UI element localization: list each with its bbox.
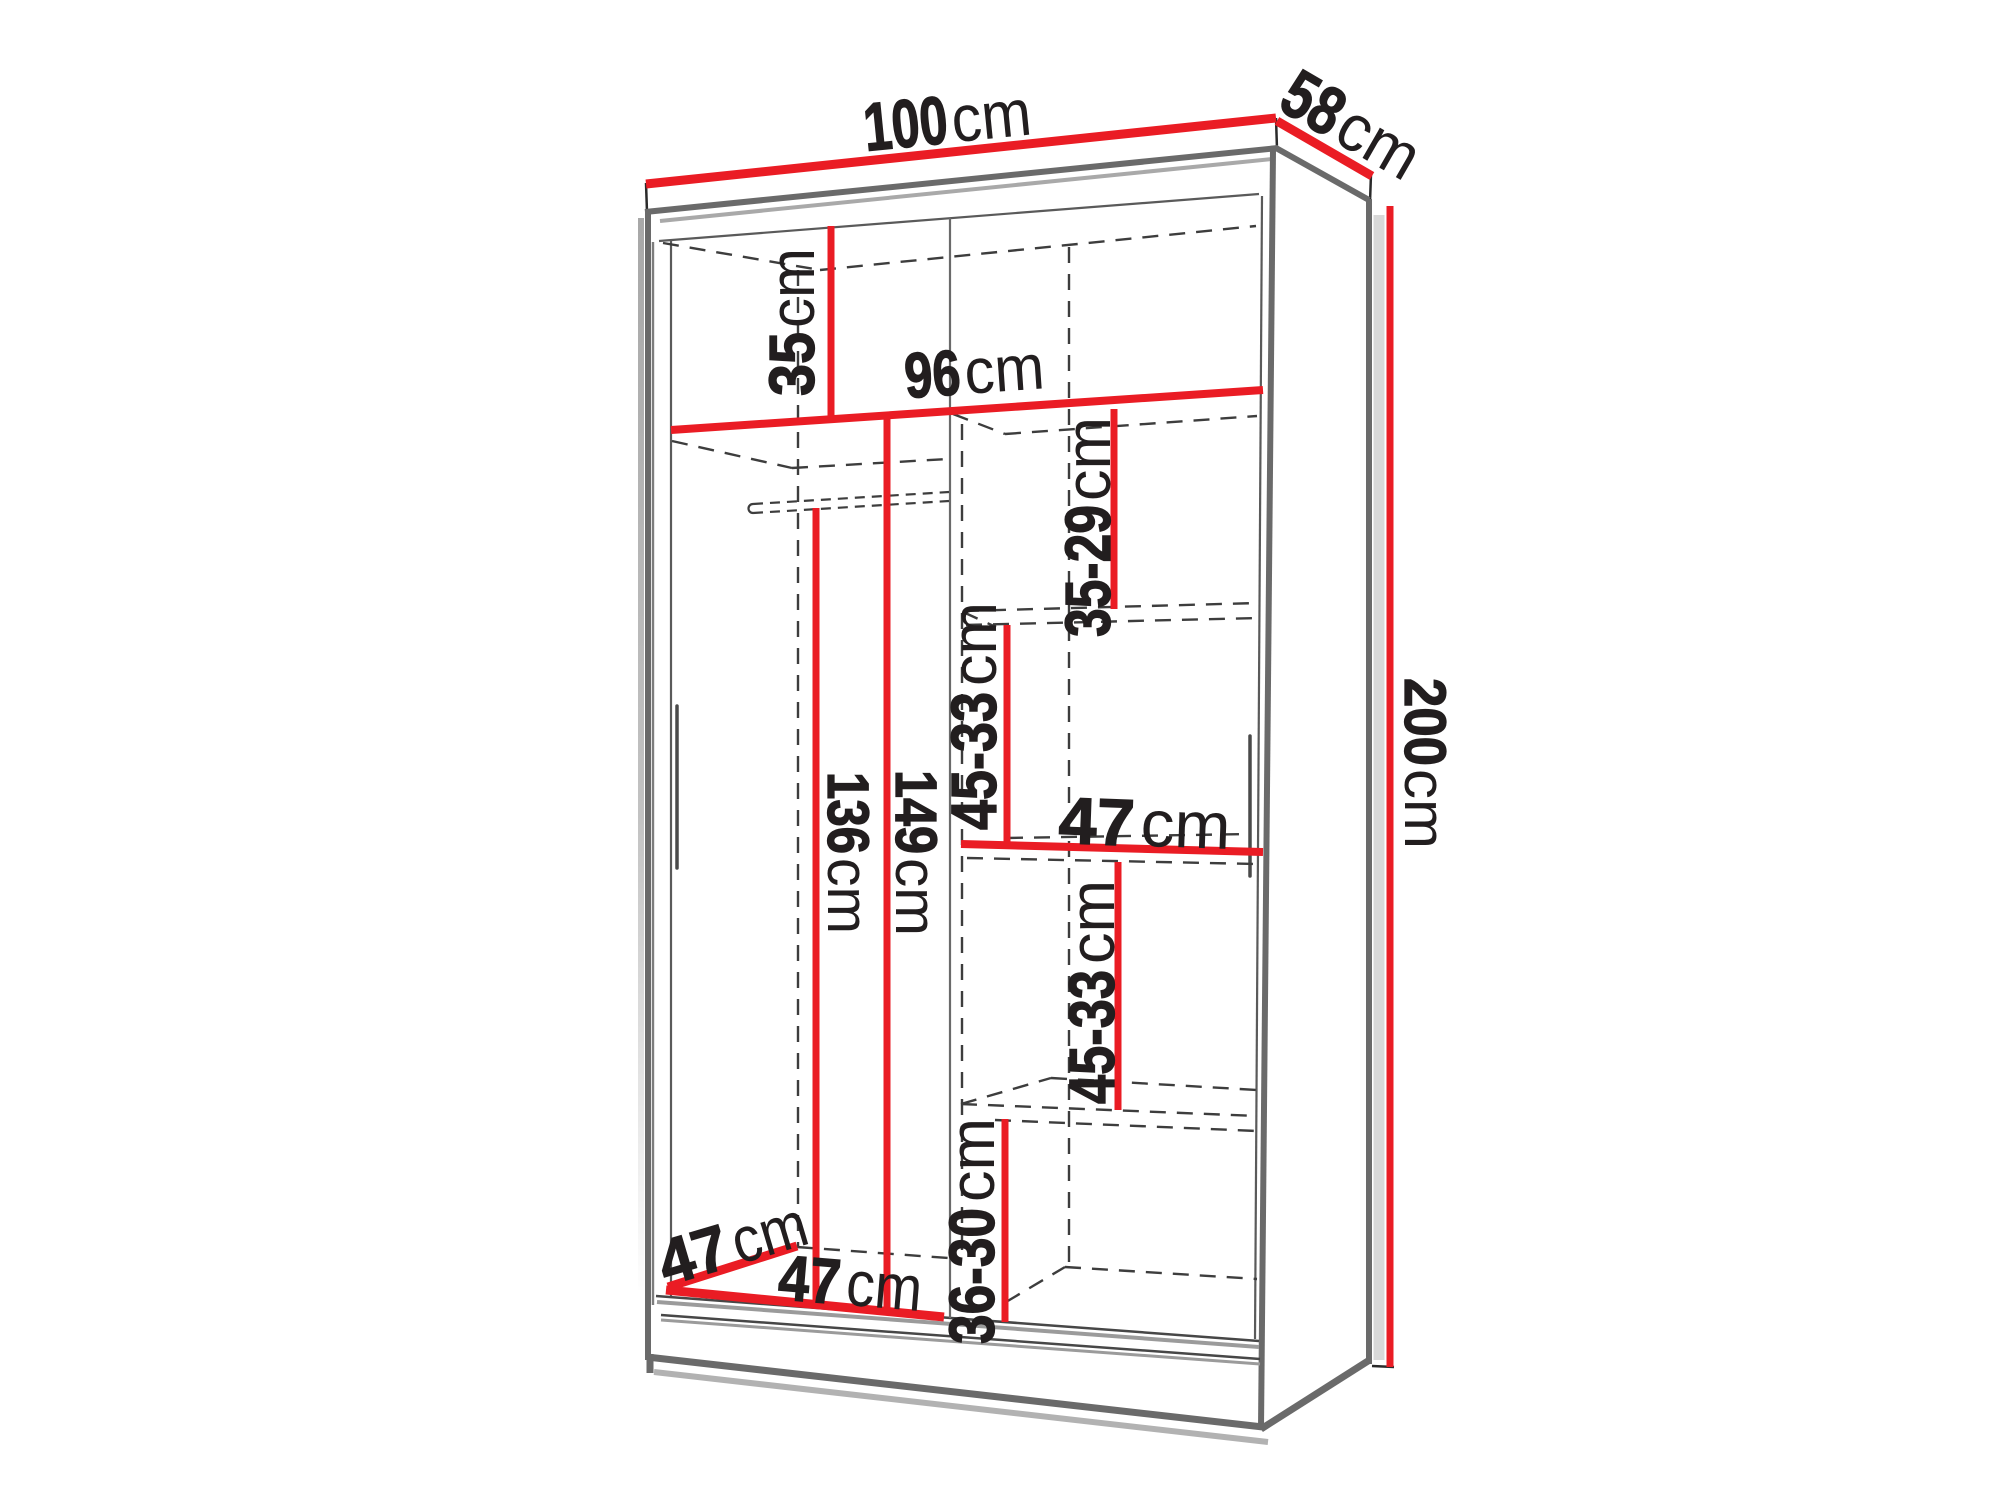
svg-text:cm: cm xyxy=(1052,417,1124,501)
svg-text:cm: cm xyxy=(1392,769,1457,849)
svg-text:cm: cm xyxy=(936,1118,1008,1202)
svg-text:35-29: 35-29 xyxy=(1052,505,1124,637)
svg-text:cm: cm xyxy=(756,248,828,328)
svg-text:100: 100 xyxy=(860,82,951,166)
svg-text:cm: cm xyxy=(815,858,880,934)
svg-text:cm: cm xyxy=(938,602,1010,686)
svg-text:45-33: 45-33 xyxy=(1056,970,1128,1104)
svg-text:149: 149 xyxy=(883,770,948,854)
svg-text:47: 47 xyxy=(1058,783,1137,860)
svg-text:cm: cm xyxy=(883,858,948,936)
svg-text:35: 35 xyxy=(756,332,828,396)
svg-text:136: 136 xyxy=(815,772,880,854)
svg-text:cm: cm xyxy=(948,75,1035,157)
svg-text:cm: cm xyxy=(1056,880,1128,964)
svg-text:200: 200 xyxy=(1392,678,1457,766)
svg-text:96: 96 xyxy=(902,336,963,412)
svg-text:cm: cm xyxy=(1139,786,1232,863)
svg-text:cm: cm xyxy=(962,330,1047,407)
svg-text:36-30: 36-30 xyxy=(936,1208,1008,1344)
svg-text:47: 47 xyxy=(776,1241,844,1318)
svg-text:47: 47 xyxy=(650,1211,738,1300)
svg-text:cm: cm xyxy=(844,1247,926,1325)
